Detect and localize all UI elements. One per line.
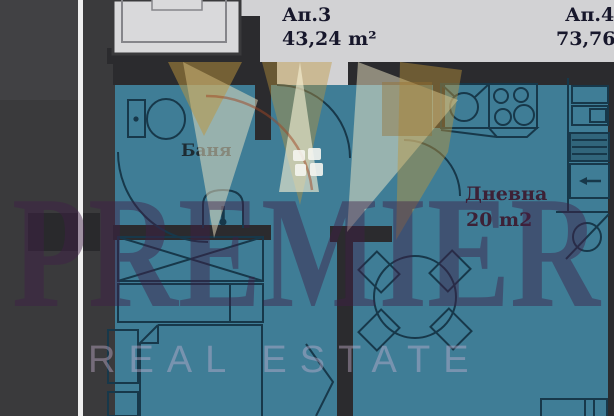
entry-door-opening [277,62,348,85]
apartment-4-label: Ап.4 [565,6,614,25]
white-divider-line [78,0,83,416]
refrigerator-icon [570,133,609,161]
bathroom-label: Баня [181,143,232,160]
living-room-label: Дневна [465,185,547,204]
apartment-4-area: 73,76 m² [556,30,614,49]
apartment-3-area: 43,24 m² [282,30,377,49]
floor-plan-image: Ап.3 43,24 m² Ап.4 73,76 m² Баня Дневна … [0,0,614,416]
balcony [113,0,240,54]
apartment-3-label: Ап.3 [282,6,331,25]
living-room-area: 20 m2 [466,211,532,230]
floor-plan [0,0,614,416]
